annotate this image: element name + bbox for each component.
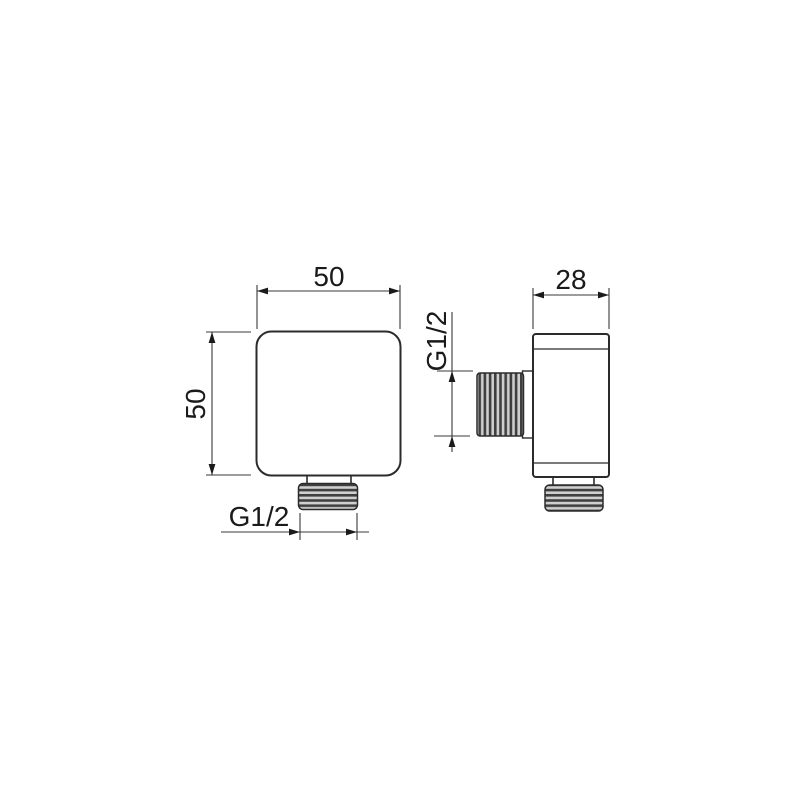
arrowhead-icon — [289, 529, 300, 536]
technical-drawing: 50 50 — [0, 0, 800, 800]
dim-front-height: 50 — [180, 332, 251, 475]
front-view: 50 50 — [180, 261, 401, 540]
dim-front-width: 50 — [257, 261, 400, 329]
side-outlet — [545, 477, 603, 511]
front-width-label: 50 — [313, 261, 344, 292]
arrowhead-down-icon — [209, 464, 216, 475]
drawing-canvas: 50 50 — [0, 0, 800, 800]
side-view: 28 G1/2 — [421, 264, 609, 511]
side-inlet-thread — [477, 373, 524, 436]
arrowhead-left-icon — [257, 288, 268, 295]
side-depth-label: 28 — [555, 264, 586, 295]
arrowhead-right-icon — [598, 292, 609, 299]
arrowhead-up-icon — [209, 332, 216, 343]
dim-side-depth: 28 — [533, 264, 609, 329]
side-inlet — [477, 371, 534, 438]
side-outlet-thread — [545, 485, 603, 511]
front-height-label: 50 — [180, 388, 211, 419]
front-body-outline — [257, 332, 401, 476]
arrowhead-icon — [449, 436, 456, 447]
arrowhead-left-icon — [533, 292, 544, 299]
side-inlet-thread-label: G1/2 — [421, 311, 452, 372]
arrowhead-icon — [449, 371, 456, 382]
side-body-outline — [533, 334, 609, 477]
dim-side-inlet-thread: G1/2 — [421, 311, 473, 452]
front-outlet-thread — [299, 484, 358, 510]
arrowhead-right-icon — [389, 288, 400, 295]
front-outlet — [299, 476, 358, 510]
front-outlet-thread-label: G1/2 — [229, 501, 290, 532]
arrowhead-icon — [346, 529, 357, 536]
